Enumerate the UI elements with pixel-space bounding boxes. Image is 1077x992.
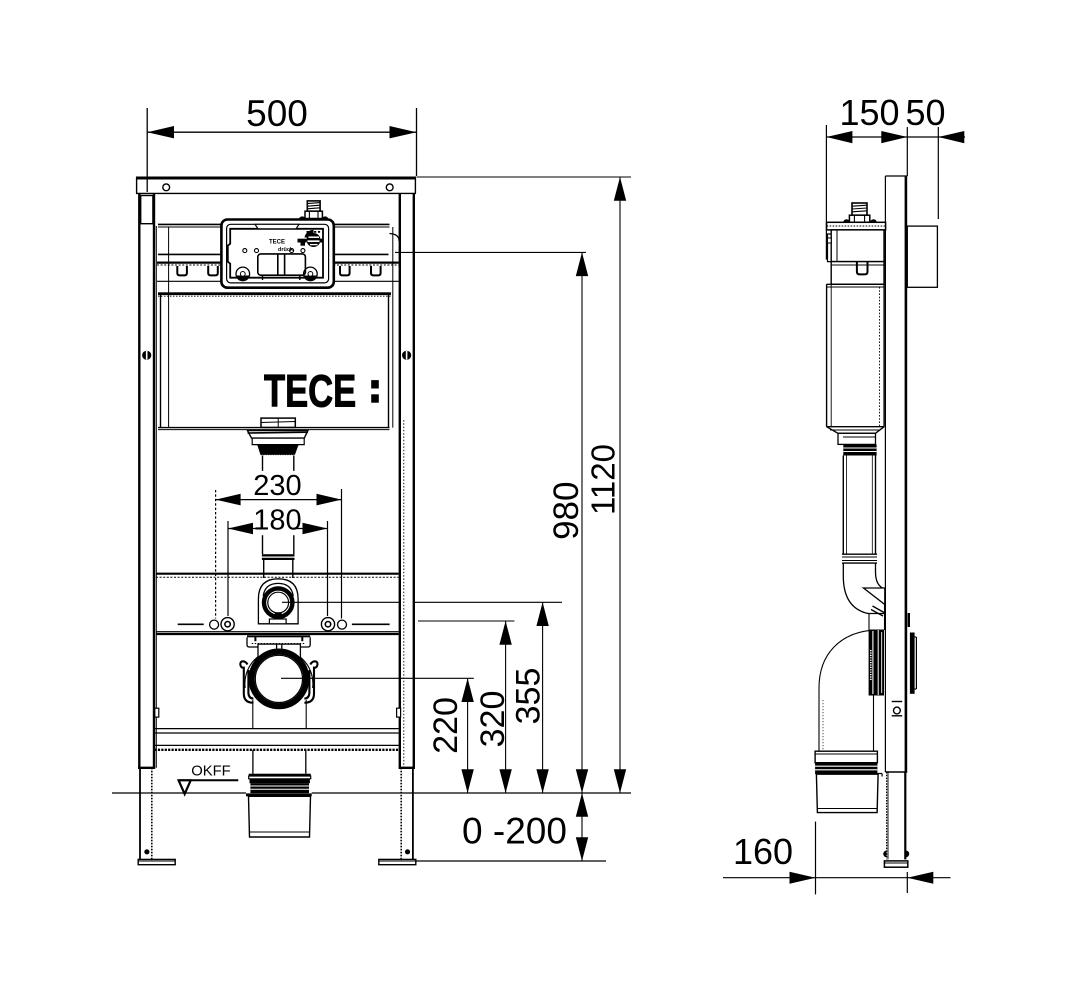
svg-text:355: 355 — [510, 668, 548, 725]
svg-text:160: 160 — [733, 831, 793, 872]
svg-text:180: 180 — [253, 505, 301, 537]
svg-text:0 -200: 0 -200 — [462, 811, 567, 852]
svg-text:500: 500 — [246, 93, 308, 134]
svg-text:TECE: TECE — [264, 365, 356, 417]
svg-text:OKFF: OKFF — [191, 763, 230, 779]
svg-text:150: 150 — [839, 92, 899, 133]
svg-text:220: 220 — [427, 697, 465, 754]
svg-text:230: 230 — [253, 470, 301, 502]
svg-text:50: 50 — [905, 92, 945, 133]
svg-text:TECE: TECE — [269, 240, 285, 246]
svg-text:980: 980 — [547, 481, 586, 539]
svg-text:1120: 1120 — [585, 444, 622, 515]
svg-text:320: 320 — [474, 691, 512, 748]
